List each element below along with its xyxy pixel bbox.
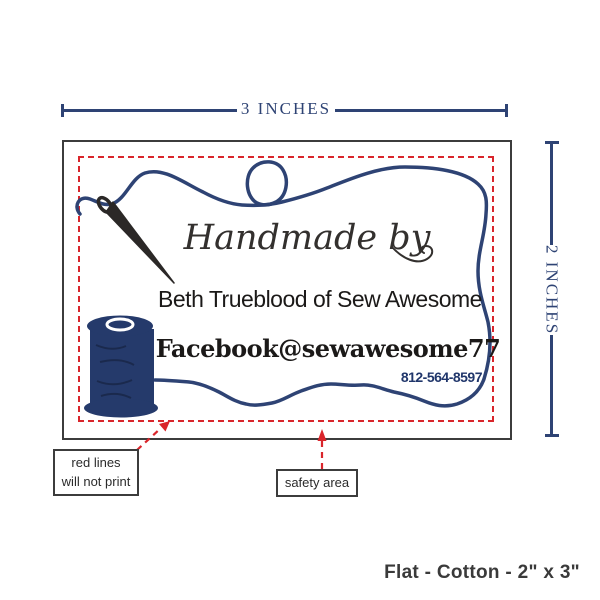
width-dimension-tick-left (61, 104, 64, 117)
height-dimension-tick-top (545, 141, 559, 144)
safety-area-callout: safety area (276, 469, 358, 497)
safety-area-callout-text: safety area (285, 474, 349, 493)
red-lines-callout: red lines will not print (53, 449, 139, 496)
height-dimension-label: 2 INCHES (533, 245, 570, 335)
height-dimension-tick-bottom (545, 434, 559, 437)
label-name-text: Beth Trueblood of Sew Awesome (158, 288, 482, 311)
label-script-text: Handmade by (184, 221, 431, 256)
label-social-text: Facebook@sewawesome77 (156, 337, 501, 361)
width-dimension-label: 3 INCHES (237, 94, 335, 124)
red-lines-callout-line2: will not print (62, 473, 131, 492)
red-lines-callout-line1: red lines (71, 454, 120, 473)
height-dimension-text: 2 INCHES (542, 245, 562, 335)
product-spec-text: Flat - Cotton - 2" x 3" (384, 562, 580, 584)
width-dimension-tick-right (505, 104, 508, 117)
label-proof-canvas: 3 INCHES 2 INCHES (0, 0, 600, 600)
label-phone-text: 812-564-8597 (401, 370, 482, 384)
